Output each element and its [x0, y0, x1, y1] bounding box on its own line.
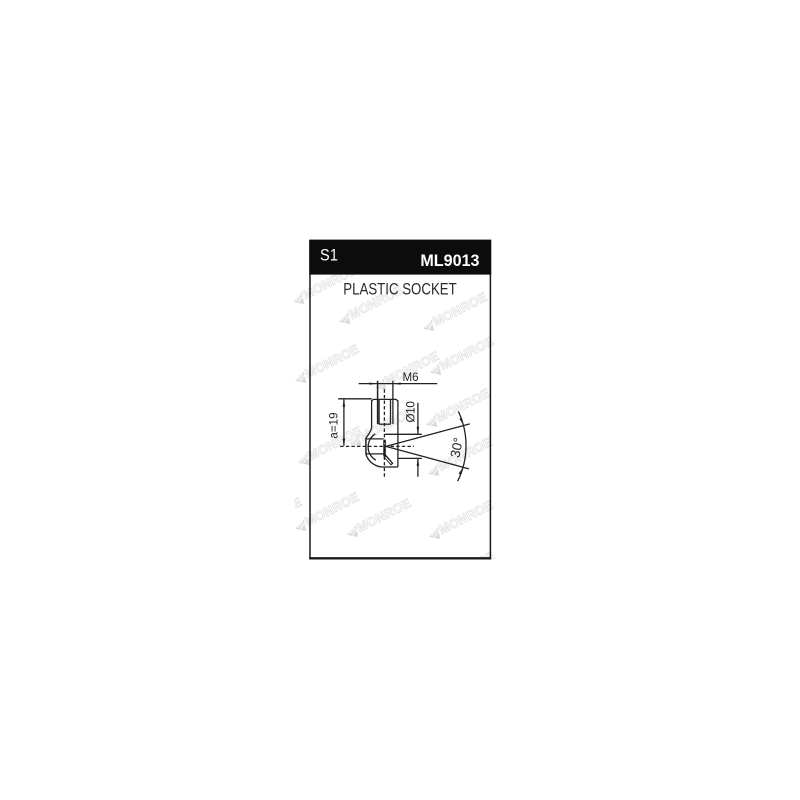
- svg-text:a=19: a=19: [328, 412, 341, 438]
- svg-text:S1: S1: [320, 247, 338, 265]
- svg-text:ML9013: ML9013: [420, 252, 479, 270]
- svg-text:M6: M6: [403, 371, 419, 384]
- svg-text:Ø10: Ø10: [405, 401, 418, 422]
- svg-text:PLASTIC SOCKET: PLASTIC SOCKET: [343, 280, 456, 299]
